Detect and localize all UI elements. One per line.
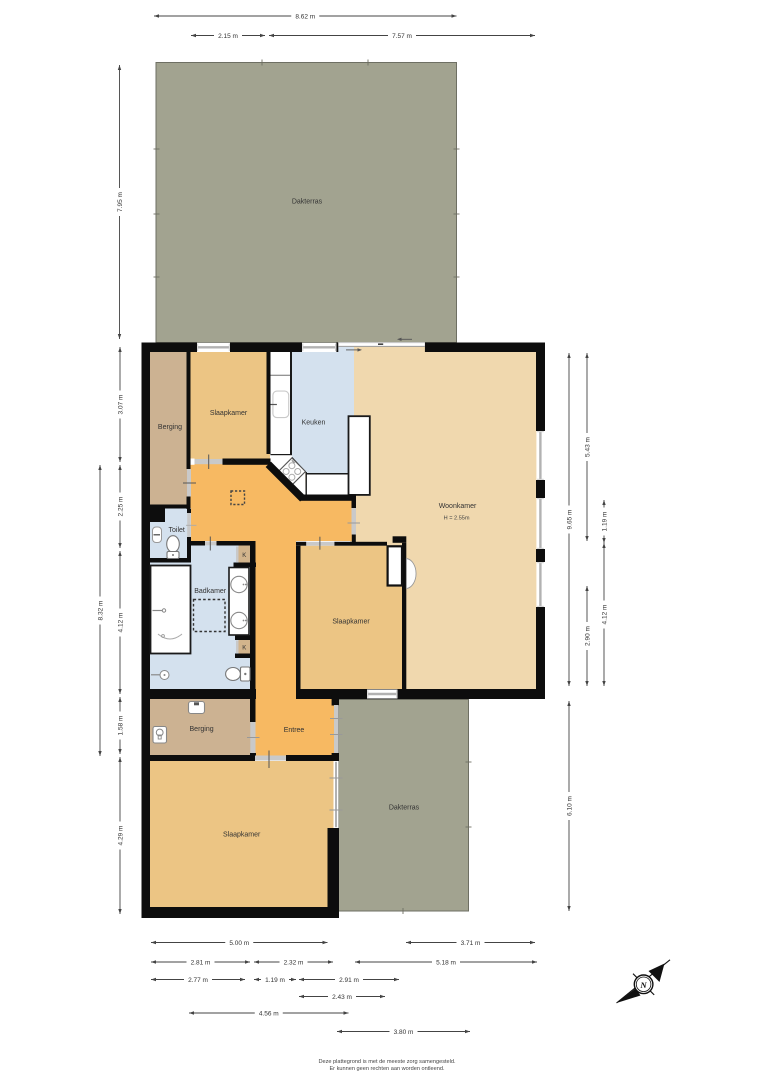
svg-text:1.58 m: 1.58 m	[117, 716, 124, 736]
svg-text:8.62 m: 8.62 m	[295, 13, 315, 20]
svg-text:Woonkamer: Woonkamer	[439, 503, 477, 510]
svg-text:4.29 m: 4.29 m	[117, 826, 124, 846]
svg-text:Deze plattegrond is met de mee: Deze plattegrond is met de meeste zorg s…	[318, 1059, 456, 1065]
svg-text:2.91 m: 2.91 m	[339, 977, 359, 984]
svg-text:H = 2.55m: H = 2.55m	[444, 516, 470, 522]
svg-text:Entree: Entree	[284, 727, 305, 734]
svg-text:Slaapkamer: Slaapkamer	[210, 410, 248, 417]
svg-text:N: N	[639, 980, 647, 990]
svg-text:8.32 m: 8.32 m	[97, 601, 104, 621]
svg-text:5.00 m: 5.00 m	[229, 940, 249, 947]
svg-text:4.56 m: 4.56 m	[259, 1010, 279, 1017]
svg-text:1.19 m: 1.19 m	[265, 977, 285, 984]
svg-text:2.77 m: 2.77 m	[188, 977, 208, 984]
svg-text:3.80 m: 3.80 m	[394, 1029, 414, 1036]
svg-text:Badkamer: Badkamer	[194, 588, 227, 595]
svg-text:K: K	[242, 646, 246, 652]
svg-text:3.71 m: 3.71 m	[461, 940, 481, 947]
svg-text:Dakterras: Dakterras	[292, 199, 323, 206]
svg-text:K: K	[242, 553, 246, 559]
svg-text:2.43 m: 2.43 m	[332, 994, 352, 1001]
svg-text:2.32 m: 2.32 m	[284, 959, 304, 966]
svg-text:2.25 m: 2.25 m	[117, 497, 124, 517]
svg-text:2.90 m: 2.90 m	[584, 626, 591, 646]
svg-text:6.10 m: 6.10 m	[566, 796, 573, 816]
svg-text:7.95 m: 7.95 m	[117, 192, 124, 212]
svg-text:Keuken: Keuken	[302, 420, 326, 427]
svg-text:1.19 m: 1.19 m	[601, 512, 608, 532]
svg-text:9.65 m: 9.65 m	[566, 510, 573, 530]
svg-text:4.12 m: 4.12 m	[117, 613, 124, 633]
svg-text:5.18 m: 5.18 m	[436, 959, 456, 966]
svg-text:Berging: Berging	[190, 726, 214, 733]
svg-text:2.15 m: 2.15 m	[218, 33, 238, 40]
svg-text:Slaapkamer: Slaapkamer	[223, 832, 261, 839]
svg-text:3.07 m: 3.07 m	[117, 395, 124, 415]
svg-text:Berging: Berging	[158, 424, 182, 431]
svg-text:Dakterras: Dakterras	[389, 805, 420, 812]
svg-text:4.12 m: 4.12 m	[601, 605, 608, 625]
svg-text:5.43 m: 5.43 m	[584, 437, 591, 457]
svg-text:Slaapkamer: Slaapkamer	[332, 619, 370, 626]
svg-text:Toilet: Toilet	[169, 527, 185, 534]
svg-text:Er kunnen geen rechten aan wor: Er kunnen geen rechten aan worden ontlee…	[329, 1066, 445, 1072]
svg-text:7.57 m: 7.57 m	[392, 33, 412, 40]
svg-text:2.81 m: 2.81 m	[191, 959, 211, 966]
